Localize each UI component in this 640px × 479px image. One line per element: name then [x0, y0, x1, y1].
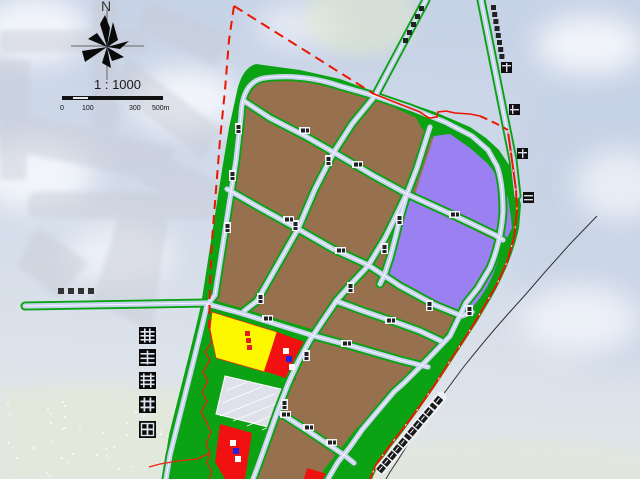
svg-text:500m: 500m: [152, 105, 170, 112]
svg-text:300: 300: [129, 105, 141, 112]
svg-text:0: 0: [60, 105, 64, 112]
svg-text:100: 100: [82, 105, 94, 112]
svg-text:N: N: [101, 0, 111, 14]
svg-text:1 : 1000: 1 : 1000: [94, 77, 141, 92]
